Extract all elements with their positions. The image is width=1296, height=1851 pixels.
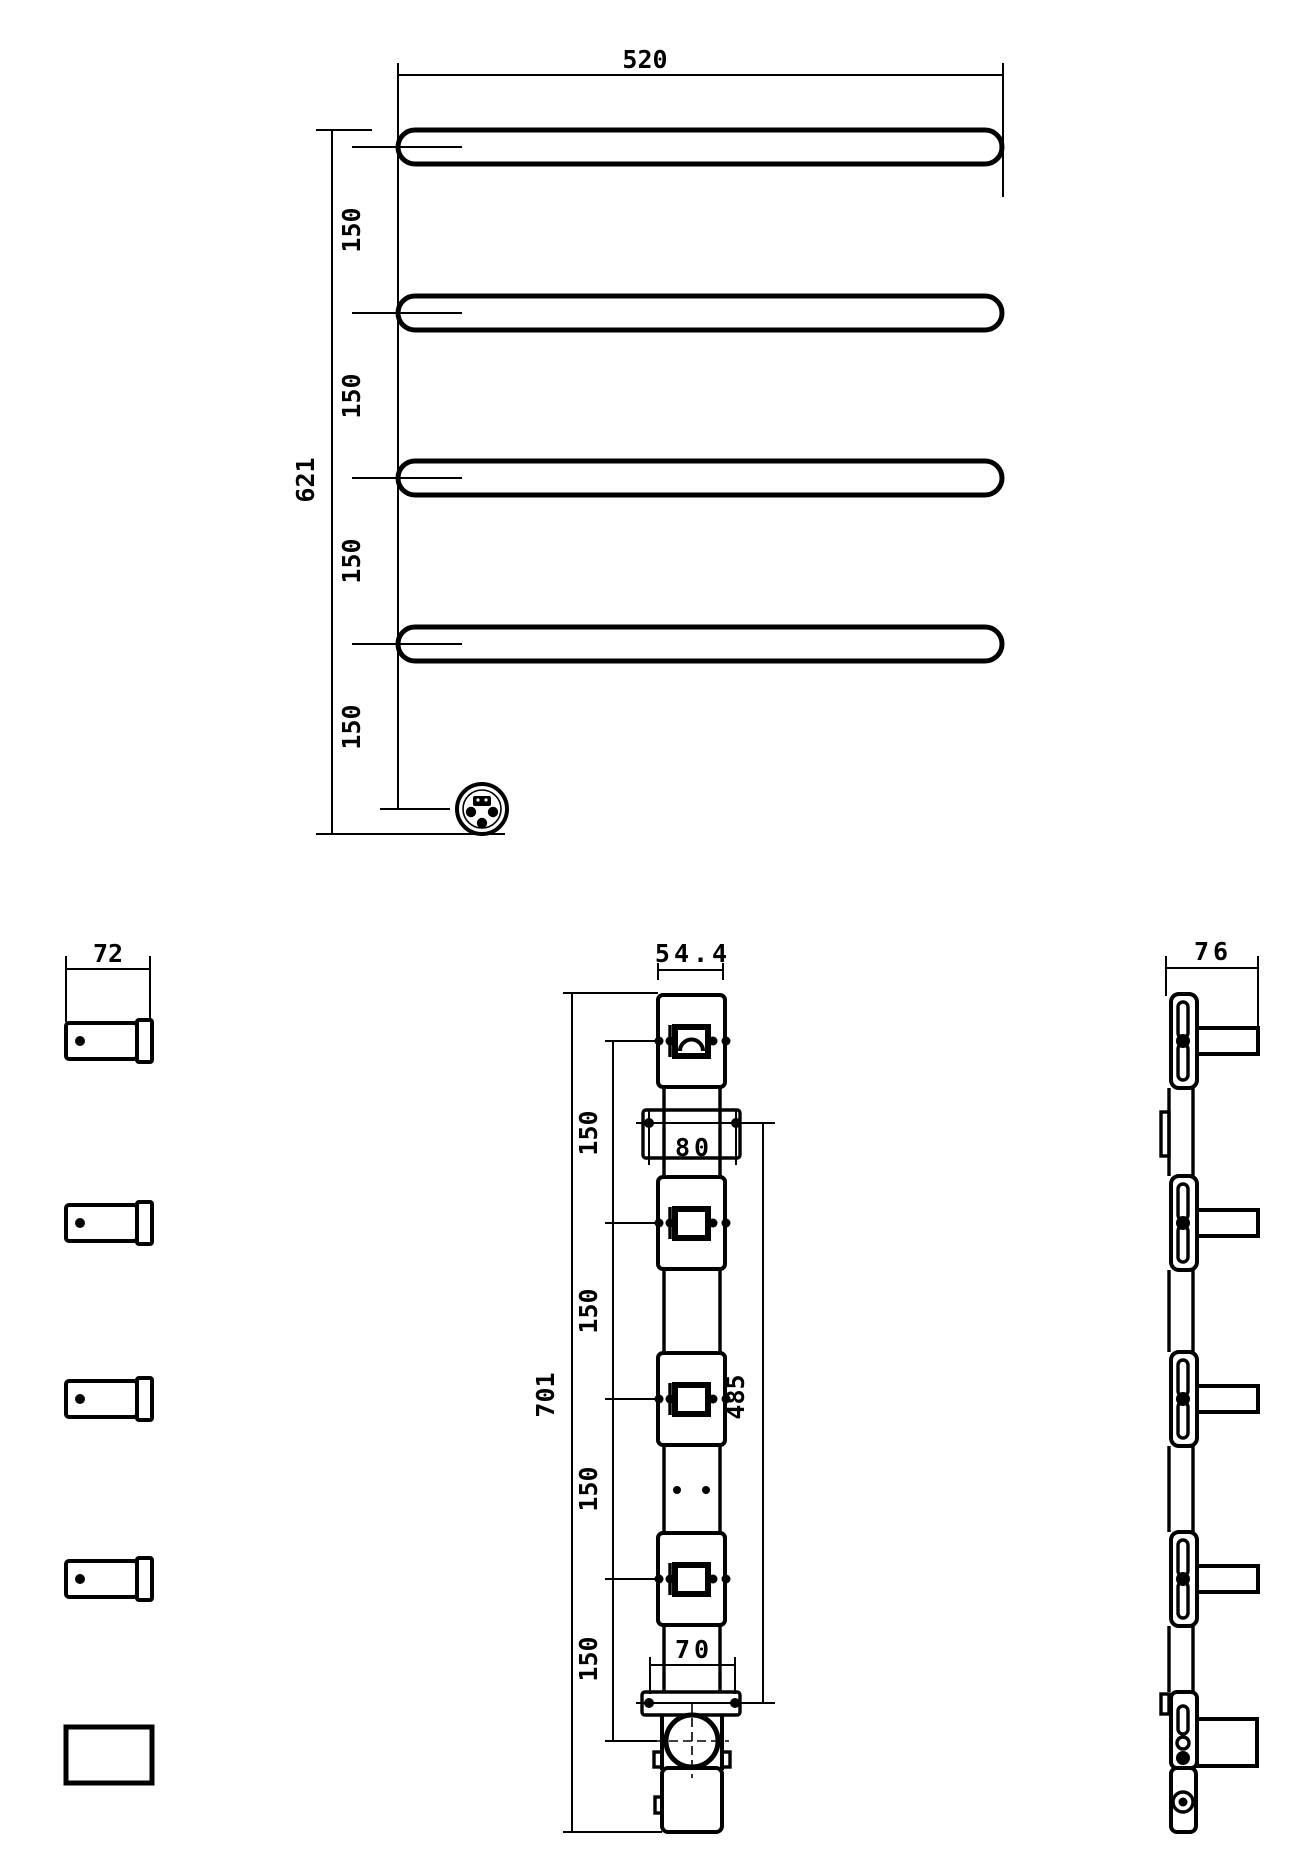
side-tab [722, 1752, 730, 1767]
dim-bar-end-width: 72 [66, 939, 150, 1022]
bar-mount-block-3 [655, 1353, 731, 1445]
column-side-view: 76 [1161, 937, 1258, 1832]
socket-dome [680, 1040, 703, 1052]
screw [722, 1575, 731, 1584]
screw [709, 1037, 718, 1046]
slot-upper [1178, 1184, 1188, 1220]
dim-label-lower-holes: 70 [675, 1635, 713, 1664]
side-bracket-3 [1171, 1352, 1258, 1446]
dim-label-spacing-4: 150 [337, 704, 366, 749]
screw [722, 1219, 731, 1228]
dim-label-col-spacing-3: 150 [574, 1466, 603, 1511]
connector-pin [488, 807, 498, 817]
bar-socket [675, 1385, 708, 1414]
screw [1176, 1572, 1190, 1586]
screw [666, 1575, 675, 1584]
connector-key-pin [484, 798, 487, 801]
screw [655, 1219, 664, 1228]
slot-lower [1178, 1582, 1188, 1618]
slot-upper [1178, 1002, 1188, 1038]
bar-end-cap [137, 1202, 152, 1244]
wall-plate-edge [1161, 1112, 1169, 1156]
technical-drawing-sheet: 520 621 150 150 150 150 [0, 0, 1296, 1851]
dim-label-upper-holes: 80 [675, 1133, 713, 1162]
cable-entry-tab [655, 1797, 662, 1813]
screw [722, 1037, 731, 1046]
bar-side [1197, 1028, 1258, 1054]
towel-bar-3 [398, 461, 1002, 495]
front-view: 520 621 150 150 150 150 [291, 45, 1003, 834]
bar-end-cap [137, 1558, 152, 1600]
screw [1176, 1751, 1190, 1765]
dim-label-spacing-2: 150 [337, 373, 366, 418]
dim-label-width: 520 [622, 45, 667, 74]
dim-label-column-height: 701 [531, 1372, 560, 1417]
dim-label-spacing-1: 150 [337, 207, 366, 252]
slot-lower [1178, 1402, 1188, 1438]
screw-hole [644, 1698, 654, 1708]
screw [655, 1575, 664, 1584]
screw [666, 1395, 675, 1404]
side-bracket-1 [1171, 994, 1258, 1088]
column-front-view: 54.4 701 150 150 150 150 485 [531, 939, 775, 1832]
slot-upper [1178, 1360, 1188, 1396]
set-screw [75, 1574, 85, 1584]
slot-lower [1178, 1044, 1188, 1080]
bar-end-piece [66, 1558, 152, 1600]
screw [655, 1037, 664, 1046]
screw [1176, 1392, 1190, 1406]
connector-pin [477, 818, 487, 828]
set-screw [75, 1036, 85, 1046]
bar-end-detail-view: 72 [66, 939, 152, 1783]
bar-side [1197, 1210, 1258, 1236]
slot-lower [1178, 1226, 1188, 1262]
bar-mount-block-4 [655, 1533, 731, 1625]
screw [1176, 1034, 1190, 1048]
connector-key-slot [473, 796, 491, 806]
screw [666, 1219, 675, 1228]
side-bracket-2 [1171, 1176, 1258, 1270]
screw [709, 1575, 718, 1584]
dim-label-bar-end-width: 72 [93, 939, 123, 968]
cable-hole [673, 1486, 681, 1494]
screw [722, 1395, 731, 1404]
screw-hole [731, 1118, 741, 1128]
screw [709, 1219, 718, 1228]
bar-side [1197, 1386, 1258, 1412]
control-box-end-view [66, 1727, 152, 1783]
control-box-side [1197, 1719, 1257, 1766]
bar-socket [675, 1209, 708, 1238]
bar-side [1197, 1566, 1258, 1592]
hole [1177, 1737, 1189, 1749]
cable-gland-pin [1179, 1798, 1188, 1807]
lower-wall-bracket [636, 1692, 775, 1715]
dim-label-overall-height: 621 [291, 457, 320, 502]
screw [1176, 1216, 1190, 1230]
dim-label-col-spacing-4: 150 [574, 1636, 603, 1681]
connector-pin [466, 807, 476, 817]
dim-label-spacing-3: 150 [337, 538, 366, 583]
side-bottom-section [1171, 1692, 1257, 1832]
dim-bracket-spacing: 485 [721, 1123, 763, 1703]
slot [1178, 1706, 1188, 1734]
towel-bar-2 [398, 296, 1002, 330]
dim-column-depth: 54.4 [655, 939, 731, 980]
screw [666, 1037, 675, 1046]
connector-key-pin [476, 798, 479, 801]
dim-label-side-depth: 76 [1194, 937, 1232, 966]
screw-hole [730, 1698, 740, 1708]
dim-label-col-spacing-2: 150 [574, 1288, 603, 1333]
bar-end-piece [66, 1378, 152, 1420]
side-bracket-4 [1171, 1532, 1258, 1626]
bar-end-piece [66, 1020, 152, 1062]
column-body [662, 1087, 722, 1770]
bar-end-cap [137, 1020, 152, 1062]
dim-width: 520 [398, 45, 1003, 197]
dim-label-column-depth: 54.4 [655, 939, 731, 968]
power-connector [457, 784, 507, 834]
dim-side-depth: 76 [1166, 937, 1258, 1027]
upper-wall-bracket: 80 [636, 1110, 775, 1165]
towel-bar-1 [398, 130, 1002, 164]
dim-label-col-spacing-1: 150 [574, 1110, 603, 1155]
bar-end-piece [66, 1202, 152, 1244]
wall-plate-edge [1161, 1694, 1169, 1714]
set-screw [75, 1218, 85, 1228]
towel-rail-dimension-drawing: 520 621 150 150 150 150 [0, 0, 1296, 1851]
bar-end-cap [137, 1378, 152, 1420]
screw [709, 1395, 718, 1404]
cable-hole [702, 1486, 710, 1494]
control-box [655, 1768, 722, 1832]
towel-bar-4 [398, 627, 1002, 661]
bar-socket [675, 1565, 708, 1594]
set-screw [75, 1394, 85, 1404]
slot-upper [1178, 1540, 1188, 1576]
screw [655, 1395, 664, 1404]
side-tab [654, 1752, 662, 1767]
bar-mount-block-1 [655, 995, 731, 1087]
screw-hole [644, 1118, 654, 1128]
bar-mount-block-2 [655, 1177, 731, 1269]
